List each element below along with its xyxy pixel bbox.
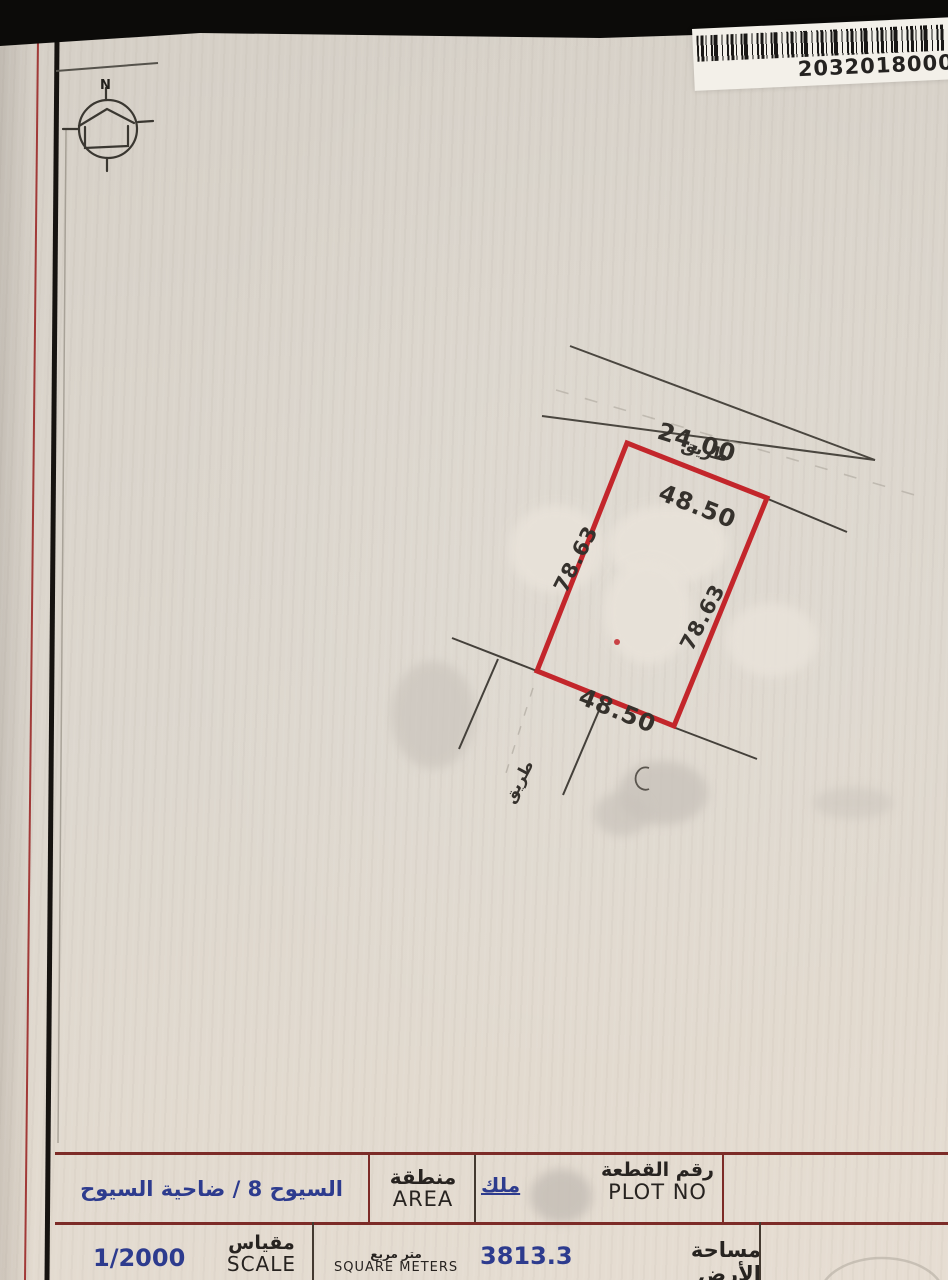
scale-label-en: SCALE	[227, 1254, 296, 1275]
plot-plan-drawing: N 24.00 طريق 48.50 78.63 78.63 48.50 طري…	[0, 0, 948, 1280]
area-value: السيوح 8 / ضاحية السيوح	[80, 1177, 343, 1201]
road-name-label-side: طريق	[499, 757, 537, 806]
plot-dim-bottom: 48.50	[575, 683, 661, 739]
compass-n-label: N	[100, 78, 111, 93]
plot-no-label-en: PLOT NO	[608, 1181, 707, 1203]
land-area-cell: متر مربع SQUARE METERS 3813.3 مساحة الأر…	[312, 1222, 761, 1280]
barcode: 2032018000	[692, 17, 948, 91]
area-label-en: AREA	[393, 1188, 454, 1210]
land-area-unit: متر مربع SQUARE METERS	[334, 1248, 458, 1274]
photo-edge-lines	[25, 40, 158, 1280]
area-label-cell: منطقة AREA	[368, 1155, 476, 1222]
land-area-value: 3813.3	[480, 1242, 573, 1270]
survey-document-page: N 24.00 طريق 48.50 78.63 78.63 48.50 طري…	[0, 0, 948, 1280]
scale-value: 1/2000	[93, 1244, 185, 1272]
owner-label: ملك	[481, 1173, 520, 1197]
north-compass-icon	[63, 88, 153, 171]
plot-no-label-ar: رقم القطعة	[601, 1161, 714, 1181]
land-area-label: مساحة الأرض	[622, 1238, 761, 1280]
info-table-row-1: السيوح 8 / ضاحية السيوح منطقة AREA ملك ر…	[55, 1152, 948, 1225]
plot-no-value-cell	[722, 1155, 948, 1222]
scale-label: مقياس SCALE	[227, 1234, 296, 1275]
plot-no-label: رقم القطعة PLOT NO	[601, 1161, 714, 1203]
info-table: السيوح 8 / ضاحية السيوح منطقة AREA ملك ر…	[55, 1152, 948, 1280]
area-value-cell: السيوح 8 / ضاحية السيوح	[55, 1155, 368, 1222]
scale-label-ar: مقياس	[228, 1234, 295, 1254]
land-area-unit-en: SQUARE METERS	[334, 1261, 458, 1275]
info-table-row-2: 1/2000 مقياس SCALE متر مربع SQUARE METER…	[55, 1222, 948, 1280]
area-label-ar: منطقة	[390, 1167, 457, 1188]
red-speck	[614, 639, 620, 645]
scale-cell: 1/2000 مقياس SCALE	[55, 1222, 312, 1280]
land-area-unit-ar: متر مربع	[370, 1248, 422, 1261]
plot-no-cell: ملك رقم القطعة PLOT NO	[474, 1155, 722, 1222]
land-area-empty-cell	[759, 1222, 948, 1280]
redaction-blobs	[391, 505, 893, 1223]
